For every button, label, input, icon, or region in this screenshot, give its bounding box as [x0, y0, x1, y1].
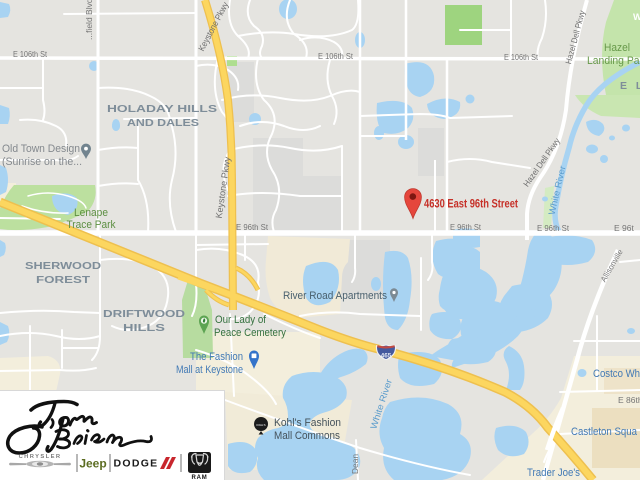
svg-text:Our Lady of: Our Lady of: [215, 314, 267, 326]
svg-text:Landing Par: Landing Par: [587, 55, 640, 67]
svg-text:The Fashion: The Fashion: [190, 351, 243, 363]
svg-text:HOLADAY HILLS: HOLADAY HILLS: [107, 103, 217, 115]
svg-text:River Road Apartments: River Road Apartments: [283, 290, 387, 302]
svg-text:Castleton Squa: Castleton Squa: [571, 426, 638, 438]
svg-text:Trace Park: Trace Park: [67, 219, 116, 231]
svg-text:DRIFTWOOD: DRIFTWOOD: [103, 308, 186, 320]
svg-text:E 106th St: E 106th St: [318, 51, 354, 61]
svg-text:AND DALES: AND DALES: [127, 117, 199, 129]
svg-text:Kohl's Fashion: Kohl's Fashion: [274, 417, 341, 429]
svg-text:(Sunrise on the...: (Sunrise on the...: [2, 156, 82, 168]
svg-text:Peace Cemetery: Peace Cemetery: [214, 327, 286, 339]
svg-text:Mall at Keystone: Mall at Keystone: [176, 364, 243, 376]
svg-text:SHERWOOD: SHERWOOD: [25, 260, 102, 272]
svg-text:Mall Commons: Mall Commons: [274, 430, 340, 442]
svg-text:E 86th: E 86th: [618, 395, 640, 405]
svg-text:E 96th St: E 96th St: [537, 223, 570, 233]
svg-text:E 96th St: E 96th St: [236, 222, 269, 232]
svg-text:RAM: RAM: [191, 475, 207, 480]
svg-text:E L: E L: [620, 80, 640, 92]
svg-text:Jeep: Jeep: [79, 457, 106, 471]
svg-text:E 96th St: E 96th St: [450, 222, 482, 232]
svg-text:DODGE: DODGE: [113, 458, 158, 470]
svg-text:W: W: [633, 12, 640, 23]
svg-text:Costco Wh: Costco Wh: [593, 368, 640, 380]
svg-text:Old Town Design: Old Town Design: [2, 143, 80, 155]
svg-text:FOREST: FOREST: [36, 274, 91, 286]
svg-text:Dean: Dean: [350, 454, 360, 475]
svg-text:HILLS: HILLS: [123, 322, 165, 334]
svg-text:E 106th St: E 106th St: [13, 49, 48, 59]
svg-text:Hazel: Hazel: [604, 42, 630, 54]
svg-text:...field Blvd: ...field Blvd: [84, 0, 94, 40]
svg-text:KOHL'S: KOHL'S: [256, 423, 266, 427]
svg-text:Lenape: Lenape: [74, 207, 108, 219]
svg-text:465: 465: [381, 353, 392, 360]
svg-text:Trader Joe's: Trader Joe's: [527, 467, 580, 479]
svg-text:E 106th St: E 106th St: [504, 52, 539, 62]
svg-text:E 96t: E 96t: [614, 223, 634, 233]
svg-text:CHRYSLER: CHRYSLER: [19, 454, 62, 460]
svg-text:4630 East 96th Street: 4630 East 96th Street: [424, 199, 518, 211]
